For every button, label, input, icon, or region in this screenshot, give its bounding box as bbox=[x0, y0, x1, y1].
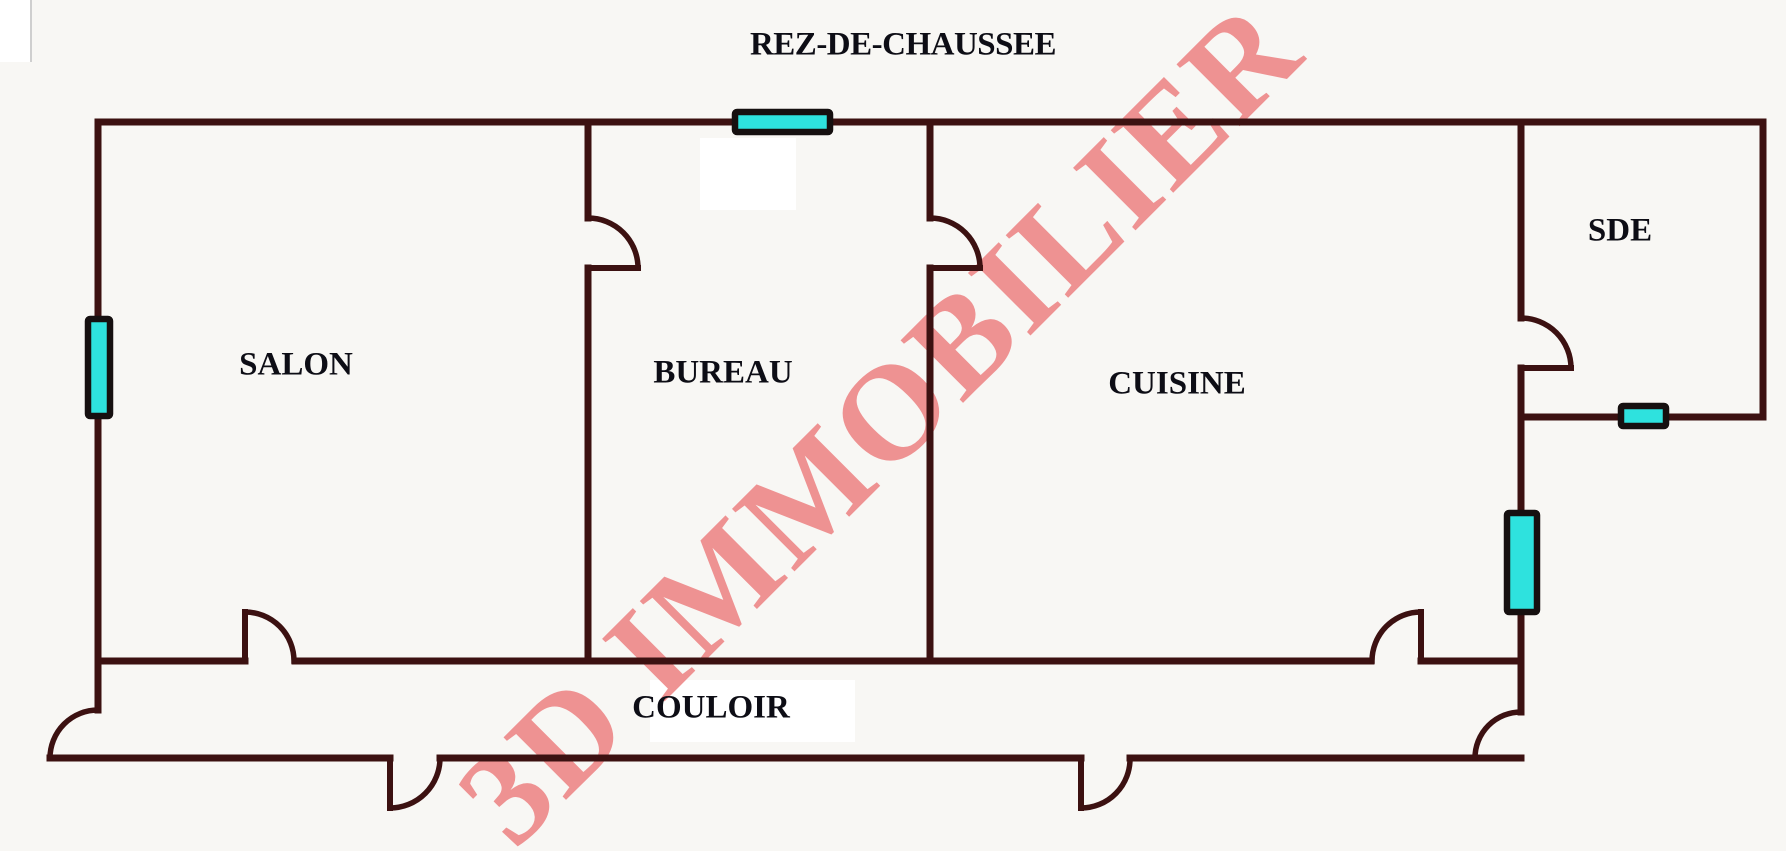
window-sde-bottom bbox=[1621, 406, 1666, 426]
window-right-cuisine bbox=[1507, 513, 1537, 612]
door-arc-bureau-cuisine bbox=[930, 218, 980, 268]
window-left-salon bbox=[88, 319, 110, 416]
door-arc-sde bbox=[1521, 318, 1571, 368]
door-arcs bbox=[50, 218, 1571, 808]
door-leaves bbox=[245, 268, 1571, 808]
room-label-couloir: COULOIR bbox=[632, 690, 790, 727]
room-label-bureau: BUREAU bbox=[653, 355, 792, 392]
door-arc-couloir-left bbox=[50, 710, 98, 758]
door-arc-exterior-1 bbox=[390, 758, 440, 808]
window-top-bureau bbox=[735, 112, 830, 132]
door-arc-salon-bureau bbox=[588, 218, 638, 268]
room-label-salon: SALON bbox=[239, 347, 353, 384]
door-arc-cuisine-couloir bbox=[1372, 612, 1421, 661]
plan-title: REZ-DE-CHAUSSEE bbox=[750, 27, 1056, 64]
room-label-sde: SDE bbox=[1588, 213, 1652, 250]
floorplan-page: 3D IMMOBILIER bbox=[0, 0, 1786, 851]
door-arc-couloir-right bbox=[1475, 712, 1521, 758]
floorplan-drawing bbox=[0, 0, 1786, 851]
room-label-cuisine: CUISINE bbox=[1108, 366, 1246, 403]
walls bbox=[50, 122, 1763, 808]
door-arc-salon-couloir bbox=[245, 612, 294, 661]
door-arc-exterior-2 bbox=[1081, 758, 1130, 808]
